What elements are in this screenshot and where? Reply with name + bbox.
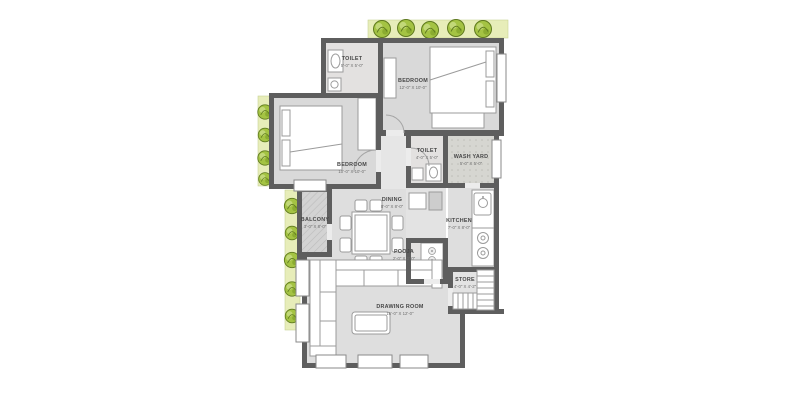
wardrobe-master: [432, 113, 484, 128]
dim-balcony: 3'-0" X 8'-0": [304, 224, 327, 229]
dresser-master: [384, 58, 396, 98]
bed-second: [280, 106, 342, 170]
label-bedroom-top: BEDROOM: [398, 78, 428, 84]
dim-toilet-mid: 4'-0" X 5'-0": [416, 155, 439, 160]
dim-bedroom-top: 12'-0" X 10'-0": [399, 85, 427, 90]
washbasin: [412, 168, 423, 180]
wardrobe-second: [358, 98, 376, 150]
window: [358, 355, 392, 368]
dim-store: 4'-0" X 4'-2": [454, 284, 477, 289]
dim-bedroom-left: 10'-0" X 10'-0": [338, 169, 366, 174]
coffee-table: [352, 312, 390, 334]
tree-icon: [374, 21, 391, 38]
terrace-garden-top: [368, 20, 508, 39]
dining-table: [352, 212, 390, 254]
label-bedroom-left: BEDROOM: [337, 162, 367, 168]
floor-plan-page: TOILET 5'-0" X 5'-0" BEDROOM 12'-0" X 10…: [0, 0, 800, 400]
label-wash-yard: WASH YARD: [454, 154, 489, 160]
window: [296, 304, 309, 342]
bed-master: [430, 47, 496, 113]
label-store: STORE: [455, 277, 475, 283]
window: [400, 355, 428, 368]
dim-kitchen: 7'-0" X 8'-0": [448, 225, 471, 230]
window: [294, 180, 326, 191]
label-kitchen: KITCHEN: [446, 218, 472, 224]
dim-dining: 8'-0" X 8'-0": [381, 204, 404, 209]
window: [296, 260, 309, 296]
kitchen-counter: [472, 190, 494, 266]
tree-icon: [422, 22, 439, 39]
tree-icon: [285, 226, 299, 240]
tree-icon: [448, 20, 465, 37]
tree-icon: [475, 21, 492, 38]
label-toilet-mid: TOILET: [417, 148, 438, 154]
floor-plan-canvas: TOILET 5'-0" X 5'-0" BEDROOM 12'-0" X 10…: [0, 0, 800, 400]
dim-toilet-top: 5'-0" X 5'-0": [341, 63, 364, 68]
tree-icon: [398, 20, 415, 37]
dim-drawing-room: 15'-0" X 12'-0": [386, 311, 414, 316]
window: [316, 355, 346, 368]
fridge: [409, 193, 426, 209]
label-pooja: POOJA: [394, 249, 414, 255]
window: [492, 140, 501, 178]
wc: [328, 78, 341, 91]
dim-wash-yard: 5'-0" X 5'-0": [460, 161, 483, 166]
dim-pooja: 2'-0" X 3'-0": [393, 256, 416, 261]
kitchen-cabinet: [429, 192, 442, 210]
label-dining: DINING: [382, 197, 402, 203]
label-balcony: BALCONY: [301, 217, 330, 223]
label-drawing-room: DRAWING ROOM: [376, 304, 424, 310]
label-toilet-top: TOILET: [342, 56, 363, 62]
window: [497, 54, 506, 102]
